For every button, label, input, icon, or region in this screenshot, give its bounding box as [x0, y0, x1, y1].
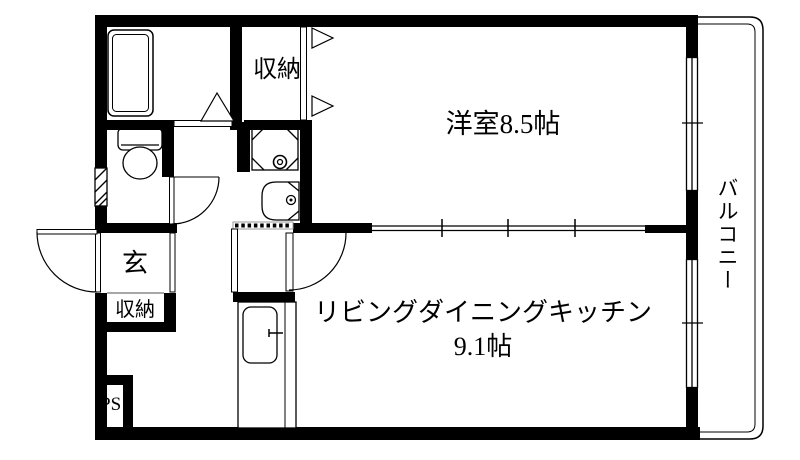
toilet — [118, 128, 162, 179]
floorplan-canvas — [0, 0, 800, 460]
hall-partition-line — [232, 229, 238, 292]
bathtub — [108, 30, 153, 116]
washbasin — [262, 182, 299, 220]
western-room-label: 洋室8.5帖 — [370, 111, 636, 138]
washing-machine-pan — [252, 128, 298, 170]
toilet-door — [170, 177, 220, 224]
bathroom-folding-door — [174, 93, 234, 127]
entrance-label: 玄 — [111, 251, 159, 277]
washroom-sliding-door — [233, 222, 293, 229]
floorplan: 洋室8.5帖 リビングダイニングキッチン 9.1帖 バルコニー 収納 玄 収納 … — [0, 0, 800, 460]
kitchen-counter — [238, 302, 296, 428]
entrance-closet-label: 収納 — [103, 300, 167, 320]
upper-closet-label: 収納 — [244, 58, 310, 82]
room-divider-sliding-door — [372, 219, 645, 237]
toilet-window-hatch — [95, 168, 107, 206]
entrance-door — [37, 230, 101, 293]
ldk-label: リビングダイニングキッチン — [300, 300, 666, 326]
pipe-space-label: PS — [100, 395, 134, 414]
walls — [95, 15, 700, 440]
ldk-size-label: 9.1帖 — [300, 334, 666, 360]
balcony-label: バルコニー — [716, 164, 737, 304]
ldk-door — [286, 233, 346, 291]
